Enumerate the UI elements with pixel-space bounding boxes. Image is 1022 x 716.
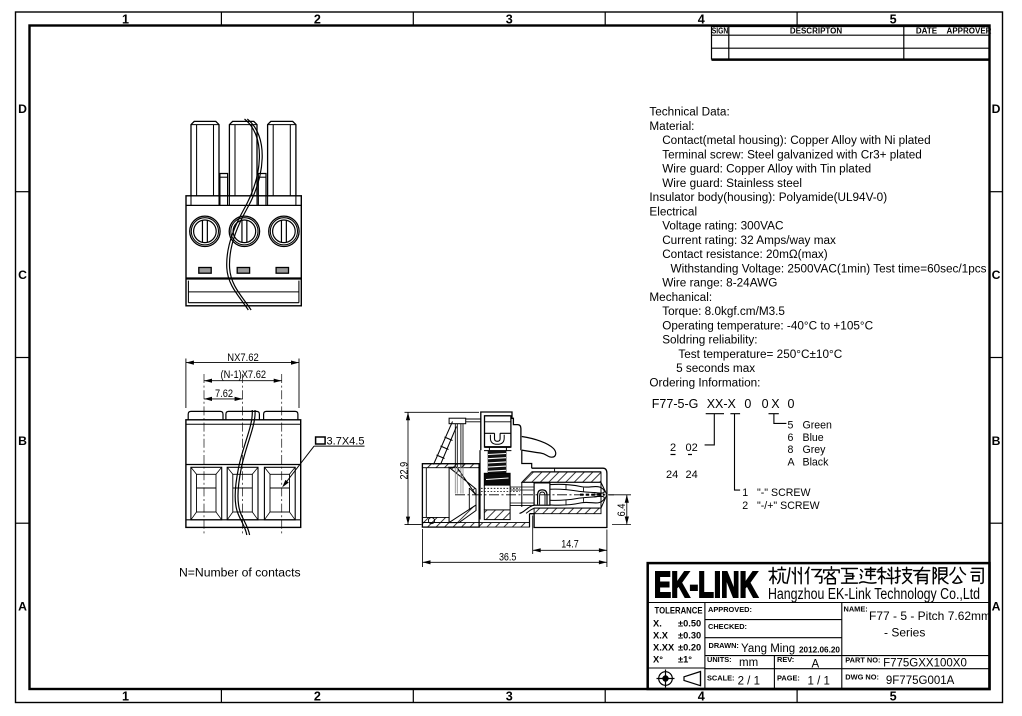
svg-text:±0.50: ±0.50 (678, 619, 701, 629)
svg-text:24: 24 (666, 469, 678, 481)
svg-text:B: B (992, 434, 1001, 448)
svg-text:36.5: 36.5 (499, 551, 517, 563)
svg-text:Operating temperature: -40°C t: Operating temperature: -40°C to +105°C (662, 319, 873, 332)
svg-text:7.62: 7.62 (215, 388, 233, 400)
svg-text:Black: Black (803, 457, 830, 469)
svg-text:±1°: ±1° (678, 655, 692, 665)
svg-text:3: 3 (506, 12, 513, 26)
svg-text:Voltage rating: 300VAC: Voltage rating: 300VAC (662, 220, 784, 233)
svg-text:Wire guard: Stainless steel: Wire guard: Stainless steel (662, 177, 802, 190)
svg-text:2: 2 (314, 689, 321, 703)
svg-text:2 / 1: 2 / 1 (738, 676, 760, 688)
svg-text:1: 1 (122, 12, 129, 26)
svg-text:1 "-" SCREW: 1 "-" SCREW (742, 487, 810, 499)
svg-text:2: 2 (670, 442, 676, 454)
svg-text:9F775G001A: 9F775G001A (886, 675, 955, 687)
svg-text:Contact(metal housing): Copper: Contact(metal housing): Copper Alloy wit… (662, 134, 930, 147)
svg-text:Terminal screw: Steel galvaniz: Terminal screw: Steel galvanized with Cr… (662, 148, 922, 161)
svg-text:F775GXX100X0: F775GXX100X0 (883, 658, 967, 670)
svg-text:±0.30: ±0.30 (678, 631, 701, 641)
svg-text:Hangzhou EK-Link Technology Co: Hangzhou EK-Link Technology Co.,Ltd (768, 586, 980, 603)
svg-text:0: 0 (788, 397, 795, 411)
svg-text:X°: X° (653, 655, 663, 665)
svg-text:2 "-/+" SCREW: 2 "-/+" SCREW (742, 500, 819, 512)
svg-text:X: X (771, 397, 780, 411)
svg-text:Ordering Information:: Ordering Information: (649, 376, 760, 389)
svg-text:Current rating: 32 Amps/way ma: Current rating: 32 Amps/way max (662, 234, 836, 247)
svg-text:Blue: Blue (803, 432, 824, 444)
svg-text:SCALE:: SCALE: (707, 674, 735, 683)
svg-text:C: C (992, 268, 1001, 282)
svg-text:NAME:: NAME: (844, 605, 868, 614)
svg-text:X.X: X.X (653, 631, 669, 641)
svg-text:A: A (992, 600, 1001, 614)
svg-text:A: A (18, 600, 27, 614)
svg-text:22.9: 22.9 (398, 462, 410, 480)
svg-text:D: D (18, 102, 27, 116)
svg-text:DWG NO:: DWG NO: (845, 673, 879, 682)
svg-text:F77 - 5 - Pitch 7.62mm: F77 - 5 - Pitch 7.62mm (869, 609, 991, 623)
svg-text:Soldring reliability:: Soldring reliability: (662, 334, 757, 347)
svg-text:N=Number of contacts: N=Number of contacts (179, 566, 301, 580)
svg-text:Grey: Grey (803, 444, 827, 456)
svg-text:CHECKED:: CHECKED: (708, 622, 747, 631)
svg-text:Test temperature= 250°C±10°C: Test temperature= 250°C±10°C (678, 348, 842, 361)
svg-text:0: 0 (744, 397, 751, 411)
svg-text:F77-5-G: F77-5-G (652, 397, 699, 411)
svg-text:(N-1)X7.62: (N-1)X7.62 (221, 369, 267, 381)
svg-text:X.: X. (653, 619, 662, 629)
svg-text:XX-X: XX-X (707, 397, 737, 411)
svg-text:REV:: REV: (777, 655, 794, 664)
svg-text:PART NO:: PART NO: (845, 655, 880, 664)
svg-text:D: D (992, 102, 1001, 116)
svg-text:TOLERANCE: TOLERANCE (655, 606, 703, 616)
svg-text:3: 3 (506, 689, 513, 703)
svg-text:Contact resistance: 20mΩ(max): Contact resistance: 20mΩ(max) (662, 248, 828, 261)
svg-text:6.4: 6.4 (616, 504, 628, 517)
svg-text:4: 4 (698, 12, 705, 26)
svg-text:5 seconds max: 5 seconds max (676, 362, 755, 375)
svg-text:4: 4 (698, 689, 705, 703)
svg-text:X.XX: X.XX (653, 643, 675, 653)
svg-text:PAGE:: PAGE: (777, 674, 800, 683)
svg-text:Yang Ming: Yang Ming (741, 643, 795, 655)
svg-text:C: C (18, 268, 27, 282)
svg-text:Electrical: Electrical (649, 205, 697, 218)
svg-text:0: 0 (762, 397, 769, 411)
svg-text:6: 6 (788, 432, 794, 444)
svg-text:Wire guard: Copper Alloy with: Wire guard: Copper Alloy with Tin plated (662, 163, 871, 176)
svg-text:UNITS:: UNITS: (707, 655, 732, 664)
svg-text:Green: Green (803, 419, 833, 431)
svg-text:2012.06.20: 2012.06.20 (799, 646, 840, 655)
svg-text:EK-LINK: EK-LINK (654, 564, 758, 605)
svg-text:5: 5 (788, 419, 794, 431)
svg-text:Mechanical:: Mechanical: (649, 291, 712, 304)
svg-text:- Series: - Series (884, 626, 925, 640)
svg-text:02: 02 (686, 442, 698, 454)
svg-text:Torque: 8.0kgf.cm/M3.5: Torque: 8.0kgf.cm/M3.5 (662, 305, 785, 318)
svg-text:B: B (18, 434, 27, 448)
svg-text:Material:: Material: (649, 120, 694, 133)
svg-text:±0.20: ±0.20 (678, 643, 701, 653)
svg-text:Wire range: 8-24AWG: Wire range: 8-24AWG (662, 277, 777, 290)
svg-text:A: A (812, 658, 820, 670)
svg-text:NX7.62: NX7.62 (227, 352, 259, 364)
svg-text:2: 2 (314, 12, 321, 26)
svg-text:Withstanding Voltage: 2500VAC(: Withstanding Voltage: 2500VAC(1min) Test… (671, 262, 987, 275)
svg-text:A: A (788, 457, 796, 469)
svg-text:APPROVER: APPROVER (947, 27, 992, 36)
svg-text:1: 1 (122, 689, 129, 703)
svg-text:24: 24 (686, 469, 698, 481)
svg-text:DRAWN:: DRAWN: (709, 641, 739, 650)
svg-text:DESCRIPTON: DESCRIPTON (790, 27, 843, 36)
svg-text:APPROVED:: APPROVED: (708, 605, 752, 614)
svg-text:Technical Data:: Technical Data: (649, 106, 729, 119)
svg-text:SIGN: SIGN (712, 27, 729, 36)
svg-text:5: 5 (890, 12, 897, 26)
svg-text:14.7: 14.7 (561, 539, 579, 551)
svg-text:Insulator body(housing): Polya: Insulator body(housing): Polyamide(UL94V… (649, 191, 887, 204)
svg-text:8: 8 (788, 444, 794, 456)
svg-text:5: 5 (890, 689, 897, 703)
svg-text:DATE: DATE (916, 27, 938, 36)
svg-text:1 / 1: 1 / 1 (808, 676, 830, 688)
svg-text:mm: mm (739, 657, 758, 669)
